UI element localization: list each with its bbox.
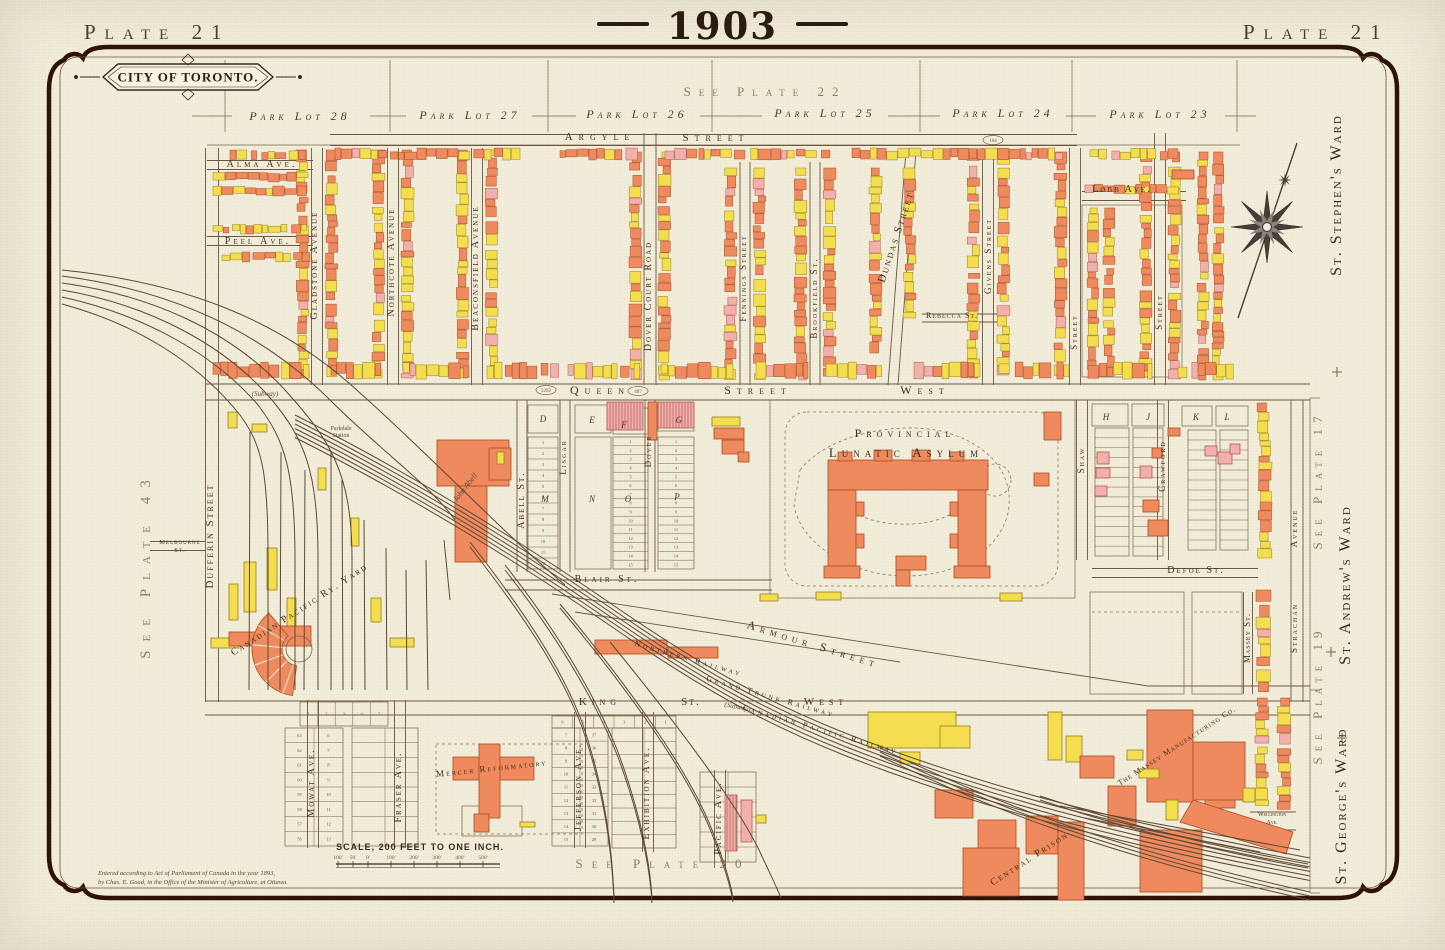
svg-text:11: 11 <box>564 785 568 790</box>
map-label: Street <box>1154 294 1164 330</box>
atlas-plate-svg: 1234567891011121234567891011121314151234… <box>0 0 1445 950</box>
svg-text:2: 2 <box>675 448 677 453</box>
svg-text:1: 1 <box>675 439 677 444</box>
map-label: Street <box>1069 314 1079 350</box>
map-label: Crawford <box>1157 440 1167 492</box>
svg-text:2: 2 <box>325 712 327 717</box>
map-label: Ave. <box>1266 820 1278 826</box>
svg-text:13: 13 <box>564 811 569 816</box>
map-label: Gladstone Avenue <box>309 211 320 320</box>
city-of-toronto-cartouche: CITY OF TORONTO. <box>74 54 302 100</box>
svg-text:200': 200' <box>409 855 418 861</box>
svg-text:33: 33 <box>592 785 597 790</box>
map-label: Dover Court Road <box>643 241 654 351</box>
scale-bar: 100'50'0'100'200'300'400'500' <box>333 855 500 868</box>
street-number-badges: 3292407104 <box>536 136 1003 396</box>
svg-text:9: 9 <box>542 528 545 533</box>
map-label: M <box>540 494 549 504</box>
svg-text:3: 3 <box>542 462 545 467</box>
map-label: Defoe St. <box>1167 565 1225 576</box>
map-label: Queen <box>570 383 630 397</box>
svg-text:9: 9 <box>327 777 330 782</box>
map-label: Brookfield St. <box>809 257 819 338</box>
map-label: Melbourne <box>159 539 200 546</box>
svg-text:5: 5 <box>378 712 381 717</box>
map-label: SCALE, 200 FEET TO ONE INCH. <box>336 842 504 852</box>
map-label: N <box>588 494 596 504</box>
svg-text:7: 7 <box>565 732 568 737</box>
map-label: Street <box>682 132 749 144</box>
map-label: Park Lot 27 <box>418 108 520 122</box>
map-label: Dover <box>643 435 653 468</box>
svg-text:0': 0' <box>366 855 370 861</box>
svg-text:2: 2 <box>644 720 646 725</box>
svg-text:100': 100' <box>386 855 395 861</box>
map-label: by Chas. E. Goad, in the Office of the M… <box>98 879 288 886</box>
svg-text:300': 300' <box>432 855 441 861</box>
map-label: Exhibition Ave. <box>641 746 652 839</box>
map-label: See Plate 22 <box>684 84 847 99</box>
svg-text:5: 5 <box>675 474 678 479</box>
map-label: Abell St. <box>516 471 527 529</box>
map-label: F <box>620 420 627 430</box>
svg-text:8: 8 <box>542 517 545 522</box>
svg-text:6: 6 <box>561 720 564 725</box>
map-label: Street <box>724 383 792 397</box>
map-label: St. George's Ward <box>1333 728 1350 885</box>
svg-text:12: 12 <box>564 798 569 803</box>
svg-text:1: 1 <box>308 712 310 717</box>
map-label: St. <box>174 547 185 554</box>
svg-text:50': 50' <box>350 855 357 861</box>
map-label: Wellington <box>1258 812 1286 818</box>
svg-text:12: 12 <box>326 822 331 827</box>
svg-text:4: 4 <box>675 466 678 471</box>
svg-text:8: 8 <box>327 763 330 768</box>
map-label: St. Andrew's Ward <box>1337 505 1354 665</box>
svg-text:104: 104 <box>989 139 997 144</box>
svg-text:62: 62 <box>297 748 302 753</box>
svg-text:7: 7 <box>327 748 330 753</box>
svg-text:29: 29 <box>592 837 597 842</box>
svg-text:4: 4 <box>542 473 545 478</box>
svg-text:31: 31 <box>592 811 597 816</box>
svg-text:10: 10 <box>628 518 633 523</box>
map-label: Fraser Ave. <box>393 751 404 822</box>
svg-text:59: 59 <box>297 792 302 797</box>
map-label: Givens Street <box>983 218 993 294</box>
map-label: See Plate 43 <box>138 471 154 659</box>
svg-text:13: 13 <box>674 545 679 550</box>
map-label: Station <box>332 433 349 439</box>
svg-text:15: 15 <box>674 562 679 567</box>
map-label: Dufferin Street <box>204 483 216 588</box>
svg-text:9: 9 <box>629 510 632 515</box>
svg-text:37: 37 <box>592 732 597 737</box>
map-label: See Plate 19 <box>1310 626 1325 765</box>
svg-text:13: 13 <box>326 836 331 841</box>
map-label: O <box>625 494 632 504</box>
map-label: Massey St. <box>1242 613 1252 663</box>
svg-text:32: 32 <box>592 798 597 803</box>
svg-text:12: 12 <box>674 536 679 541</box>
map-label: P <box>673 492 680 502</box>
map-label: King <box>579 696 621 708</box>
compass-rose-icon <box>1231 143 1303 318</box>
svg-text:10: 10 <box>541 539 546 544</box>
svg-text:2: 2 <box>629 448 631 453</box>
map-label: D <box>539 414 547 424</box>
map-label: Armour Street <box>745 617 881 671</box>
map-label: Shaw <box>1076 447 1086 474</box>
map-label: Strachan <box>1289 603 1299 653</box>
svg-text:9: 9 <box>675 510 678 515</box>
map-label: Park Lot 26 <box>585 107 687 121</box>
svg-text:5: 5 <box>629 474 632 479</box>
map-label: Lobb Ave. <box>1092 184 1152 195</box>
svg-text:407: 407 <box>634 390 642 395</box>
svg-text:3: 3 <box>675 457 678 462</box>
svg-text:100': 100' <box>333 855 342 861</box>
map-label: Jefferson Ave. <box>573 743 584 831</box>
svg-text:61: 61 <box>297 763 302 768</box>
svg-text:3: 3 <box>629 457 632 462</box>
map-label: Northcote Avenue <box>386 207 397 316</box>
svg-text:56: 56 <box>297 836 302 841</box>
map-label: See Plate 20 <box>576 856 751 871</box>
map-label: Mowat Ave. <box>306 748 317 817</box>
map-label: Entered according to Act of Parliament o… <box>97 870 275 877</box>
map-label: L <box>1223 412 1229 422</box>
map-label: G <box>676 415 683 425</box>
map-sheet: Plate 21 1903 Plate 21 12345678910111212… <box>0 0 1445 950</box>
svg-text:3292: 3292 <box>541 389 552 394</box>
svg-text:14: 14 <box>564 824 569 829</box>
svg-text:11: 11 <box>326 807 330 812</box>
map-label: E <box>588 415 595 425</box>
svg-text:8: 8 <box>565 745 568 750</box>
svg-text:7: 7 <box>542 506 545 511</box>
map-label: St. <box>681 696 701 708</box>
svg-text:1: 1 <box>665 720 667 725</box>
map-label: Rebecca St. <box>926 311 978 320</box>
svg-text:14: 14 <box>628 554 633 559</box>
svg-text:2: 2 <box>542 451 544 456</box>
svg-text:63: 63 <box>297 733 302 738</box>
map-label: Blair St. <box>575 574 640 585</box>
map-label: Pacific Ave. <box>713 781 724 855</box>
map-label: Beaconsfield Avenue <box>470 205 481 330</box>
map-label: Park Lot 28 <box>248 109 350 123</box>
svg-text:6: 6 <box>675 483 678 488</box>
map-label: Avenue <box>1289 509 1299 548</box>
svg-text:57: 57 <box>297 822 302 827</box>
map-label: Peel Ave. <box>225 236 291 247</box>
map-label: J <box>1146 412 1151 422</box>
svg-text:60: 60 <box>297 777 302 782</box>
svg-text:12: 12 <box>628 536 633 541</box>
svg-text:4: 4 <box>360 712 363 717</box>
svg-text:4: 4 <box>629 466 632 471</box>
svg-text:1: 1 <box>542 440 544 445</box>
map-label: See Plate 17 <box>1310 411 1325 550</box>
map-label: West <box>900 383 950 397</box>
svg-text:400': 400' <box>455 855 464 861</box>
svg-text:14: 14 <box>674 554 679 559</box>
svg-text:10: 10 <box>326 792 331 797</box>
svg-text:6: 6 <box>327 733 330 738</box>
map-label: K <box>1192 412 1200 422</box>
svg-text:36: 36 <box>592 745 597 750</box>
svg-text:58: 58 <box>297 807 302 812</box>
map-label: Park Lot 23 <box>1108 107 1210 121</box>
map-label: Alma Ave. <box>227 159 298 170</box>
map-label: St. Stephen's Ward <box>1328 114 1345 276</box>
map-label: H <box>1102 412 1110 422</box>
map-label: Lunatic Asylum <box>829 445 983 460</box>
map-label: Parkdale <box>331 426 352 432</box>
map-label: Park Lot 25 <box>773 106 875 120</box>
map-label: Provincial <box>855 426 956 440</box>
cartouche-title: CITY OF TORONTO. <box>117 70 258 85</box>
svg-text:3: 3 <box>343 712 346 717</box>
map-label: Fennings Street <box>738 234 748 321</box>
svg-text:6: 6 <box>629 483 632 488</box>
map-canvas: 1234567891011121234567891011121314151234… <box>0 0 1445 950</box>
svg-text:5: 5 <box>542 484 545 489</box>
svg-text:15: 15 <box>628 562 633 567</box>
svg-text:15: 15 <box>564 837 569 842</box>
map-label: (Subway) <box>252 390 279 398</box>
svg-text:10: 10 <box>674 518 679 523</box>
map-label: Lisgar <box>558 439 568 475</box>
map-label: Argyle <box>565 131 636 143</box>
svg-text:11: 11 <box>541 550 545 555</box>
svg-text:10: 10 <box>564 772 569 777</box>
svg-text:11: 11 <box>674 527 678 532</box>
landmark-buildings <box>211 170 1293 900</box>
svg-text:13: 13 <box>628 545 633 550</box>
svg-text:9: 9 <box>565 758 568 763</box>
map-label: Park Lot 24 <box>951 106 1053 120</box>
svg-text:1: 1 <box>629 439 631 444</box>
svg-text:30: 30 <box>592 824 597 829</box>
svg-text:500': 500' <box>478 855 487 861</box>
svg-text:3: 3 <box>623 720 626 725</box>
svg-text:11: 11 <box>628 527 632 532</box>
